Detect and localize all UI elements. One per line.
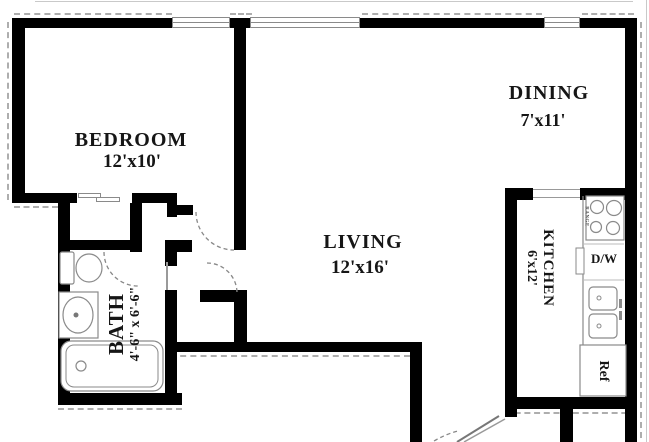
stove-burner: [607, 222, 620, 235]
wall-hall-jog-h: [175, 205, 193, 215]
wall-bath-topright-stub: [165, 240, 192, 252]
wall-left: [12, 18, 25, 203]
right-edge-line: [646, 0, 647, 442]
wall-living-bottom: [165, 342, 422, 352]
dishwasher-label: D/W: [584, 252, 624, 266]
wall-below-kitchen: [560, 397, 573, 442]
hatch-top-2: [230, 13, 252, 15]
hatch-living-bottom: [170, 355, 410, 357]
dining-dims: 7'x11': [488, 111, 598, 131]
range-label: RANGE: [583, 206, 589, 227]
hatch-top-1: [14, 13, 172, 15]
sink-drain: [597, 296, 601, 300]
dining-label: DINING: [489, 82, 609, 104]
window-pane-line: [251, 22, 359, 23]
range-label-block: RANGE: [581, 197, 592, 237]
wall-right: [625, 18, 637, 442]
bath-dims: 4'-6" x 6'-6": [128, 287, 143, 362]
dishwasher-handle: [576, 248, 584, 274]
wall-bath-top: [58, 240, 130, 250]
wall-top-mid1: [230, 18, 250, 28]
closet-bifold-door-right: [96, 197, 120, 202]
kitchen-dims: 6'x12': [524, 250, 539, 286]
wall-bath-bottom: [58, 393, 182, 405]
bathtub-drain: [76, 361, 86, 371]
hatch-bedroom-bottom: [14, 206, 58, 208]
refrigerator-label-block: Ref: [588, 346, 618, 396]
window-pane-line: [545, 22, 579, 23]
sink-drain: [597, 324, 601, 328]
kitchen-label-block: KITCHEN 6'x12': [515, 218, 565, 318]
stove-burner: [591, 201, 604, 214]
hall-closet-door-arc: [207, 263, 237, 293]
wall-bath-left: [58, 203, 70, 393]
hatch-top-3: [362, 13, 542, 15]
bedroom-label: BEDROOM: [56, 129, 206, 151]
floor-plan: BEDROOM 12'x10' DINING 7'x11' LIVING 12'…: [0, 0, 649, 442]
faucet: [619, 311, 622, 320]
dining-window: [544, 17, 580, 28]
kitchen-passthrough: [533, 189, 580, 198]
top-edge-line: [35, 1, 633, 2]
entry-door-leaf: [457, 416, 499, 442]
wall-closet-right: [130, 203, 142, 252]
refrigerator-label: Ref: [595, 361, 610, 382]
wall-top-mid2: [360, 18, 544, 28]
kitchen-sink-basin: [589, 314, 617, 338]
living-label: LIVING: [303, 231, 423, 253]
bath-label-block: BATH 4'-6" x 6'-6": [99, 264, 149, 384]
hatch-left: [7, 22, 9, 200]
stove: [586, 196, 624, 240]
bath-label: BATH: [105, 293, 128, 355]
bath-opening-line: [166, 262, 168, 292]
living-window: [250, 17, 360, 28]
stove-burner: [591, 222, 602, 233]
entry-door-leaf-inner: [464, 419, 505, 442]
living-dims: 12'x16': [300, 258, 420, 279]
wall-top-left: [12, 18, 172, 28]
bedroom-window: [172, 17, 230, 28]
faucet: [619, 299, 622, 308]
hatch-bath-bottom: [58, 408, 182, 410]
wall-bedroom-bottom-a: [12, 193, 77, 203]
bedroom-dims: 12'x10': [67, 152, 197, 173]
kitchen-label: KITCHEN: [539, 229, 556, 307]
vanity-drain: [74, 313, 79, 318]
stove-burner: [607, 201, 622, 216]
bedroom-door-arc: [196, 212, 234, 250]
entry-door-arc: [434, 431, 458, 441]
wall-bedroom-living-divider: [234, 28, 246, 250]
hatch-right: [640, 22, 642, 438]
wall-bedroom-bottom-b: [132, 193, 177, 203]
window-pane-line: [173, 22, 229, 23]
hatch-top-4: [582, 13, 634, 15]
wall-foyer-left: [410, 342, 422, 442]
kitchen-sink-basin: [589, 287, 617, 310]
wall-kitchen-top-left: [505, 188, 533, 200]
